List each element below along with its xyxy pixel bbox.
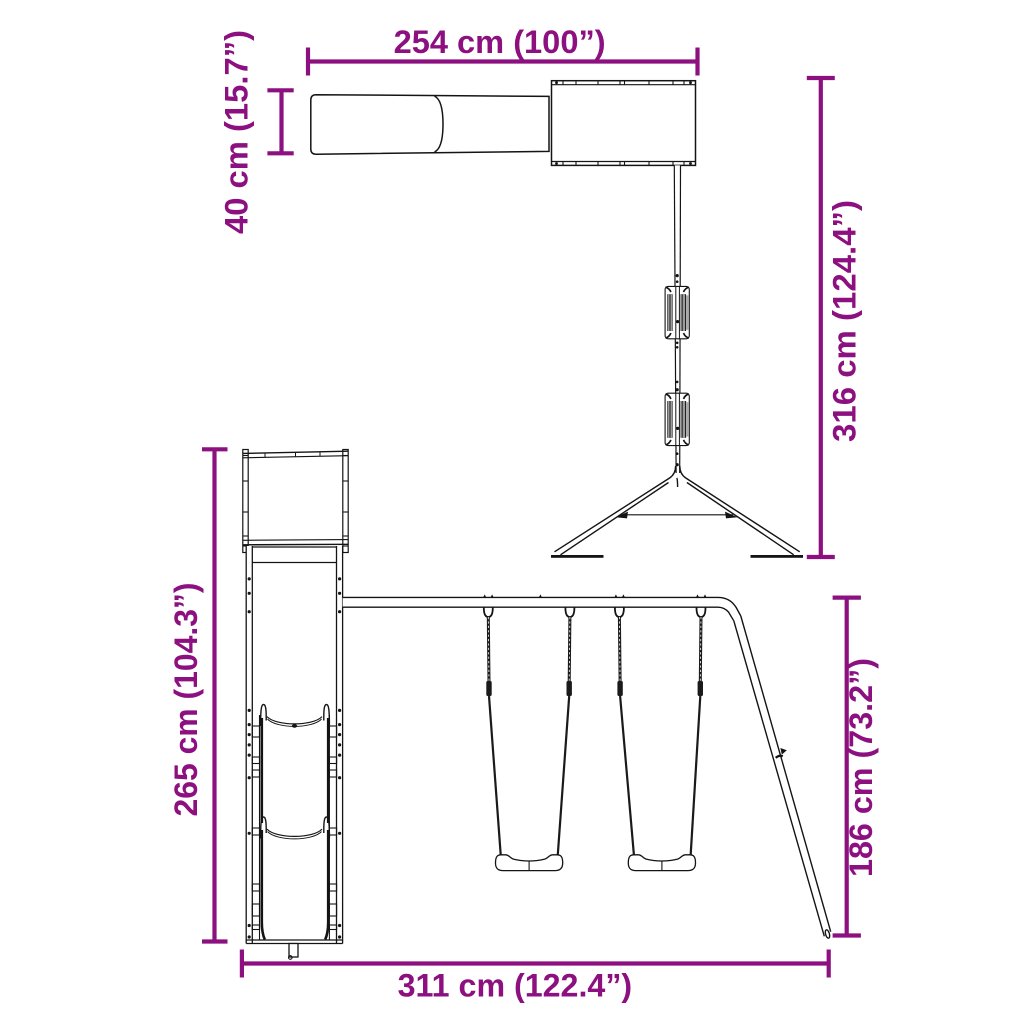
svg-text:254 cm (100”): 254 cm (100”) <box>394 24 606 60</box>
svg-text:186 cm (73.2”): 186 cm (73.2”) <box>843 658 879 877</box>
svg-text:265 cm (104.3”): 265 cm (104.3”) <box>168 583 204 817</box>
svg-text:40 cm (15.7”): 40 cm (15.7”) <box>219 30 255 234</box>
svg-text:316 cm (124.4”): 316 cm (124.4”) <box>827 200 863 442</box>
svg-text:311 cm (122.4”): 311 cm (122.4”) <box>398 968 633 1004</box>
